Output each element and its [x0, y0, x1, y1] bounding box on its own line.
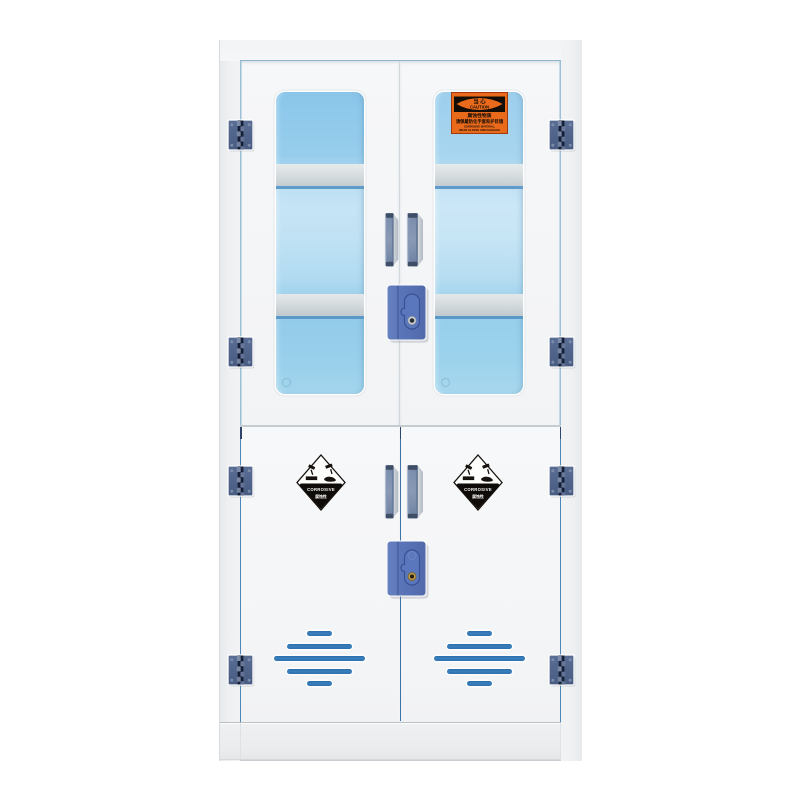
- svg-text:腐蚀性: 腐蚀性: [315, 494, 327, 499]
- svg-text:腐蚀性物质: 腐蚀性物质: [468, 112, 492, 119]
- svg-text:WEAR GLOVES AND GOGGLES: WEAR GLOVES AND GOGGLES: [459, 128, 500, 132]
- svg-text:腐蚀性: 腐蚀性: [472, 494, 484, 499]
- svg-text:CAUTION: CAUTION: [470, 105, 489, 110]
- svg-text:CORROSIVE MATERIAL,: CORROSIVE MATERIAL,: [464, 124, 496, 128]
- svg-text:CORROSIVE: CORROSIVE: [307, 487, 335, 492]
- svg-text:CORROSIVE: CORROSIVE: [464, 487, 492, 492]
- svg-text:请佩戴防化手套和护目镜: 请佩戴防化手套和护目镜: [456, 118, 504, 125]
